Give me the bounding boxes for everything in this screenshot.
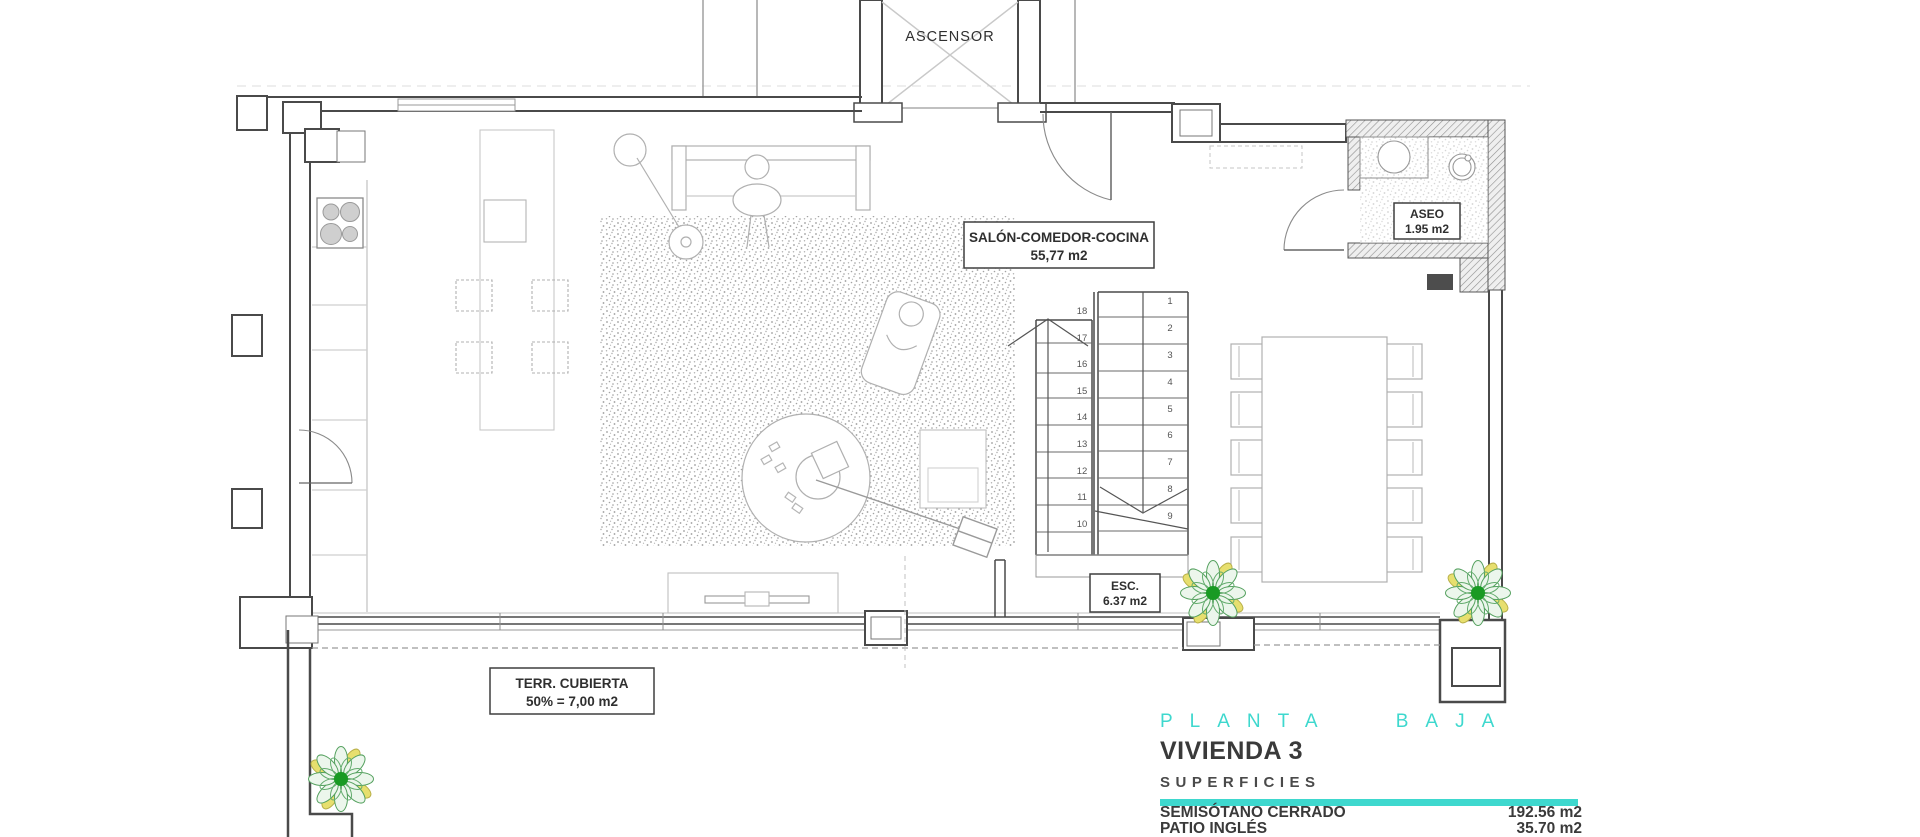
- terrace-door-arc: [299, 430, 352, 483]
- aseo-door-arc: [1284, 190, 1344, 250]
- surface-label: PATIO INGLÉS: [1160, 821, 1267, 836]
- surface-value: 192.56 m2: [1508, 805, 1582, 820]
- esc-label-box: ESC. 6.37 m2: [1090, 574, 1160, 612]
- stove-icon: [317, 198, 363, 248]
- left-wall-pilasters: [232, 96, 365, 528]
- aseo-area: 1.95 m2: [1405, 222, 1449, 236]
- stairs-numbers: 1 2 3 4 5 6 7 8 9 10 11 12 13 14 15 16 1…: [1077, 296, 1173, 530]
- left-wall: [290, 112, 310, 630]
- surface-row: SEMISÓTANO CERRADO 192.56 m2: [1160, 804, 1582, 820]
- stairs: 1 2 3 4 5 6 7 8 9 10 11 12 13 14 15 16 1…: [1008, 292, 1188, 577]
- tv-cabinet: [668, 573, 838, 613]
- stair-number: 10: [1077, 519, 1088, 530]
- plant-icon: [308, 746, 373, 811]
- entry-door-jamb: [1172, 104, 1220, 142]
- elevator-cross: [882, 2, 1018, 108]
- stair-number: 5: [1167, 404, 1172, 415]
- side-lounge: [920, 430, 986, 508]
- ascensor-label: ASCENSOR: [905, 29, 994, 45]
- stair-number: 17: [1077, 333, 1088, 344]
- terr-area: 50% = 7,00 m2: [526, 694, 618, 709]
- entry-door-arc: [1043, 112, 1111, 200]
- stairs-boundary: [1036, 292, 1188, 555]
- stair-number: 4: [1167, 377, 1172, 388]
- salon-label: SALÓN-COMEDOR-COCINA: [969, 230, 1149, 245]
- surface-value: 35.70 m2: [1517, 821, 1583, 836]
- plant-icon: [1445, 560, 1510, 625]
- stair-number: 3: [1167, 350, 1172, 361]
- stair-number: 6: [1167, 430, 1172, 441]
- stair-number: 16: [1077, 359, 1088, 370]
- stair-number: 8: [1167, 484, 1172, 495]
- stair-number: 7: [1167, 457, 1172, 468]
- stair-number: 13: [1077, 439, 1088, 450]
- round-rug: [742, 414, 870, 542]
- stair-number: 11: [1077, 492, 1087, 503]
- aseo-label: ASEO: [1410, 207, 1444, 221]
- salon-label-box: SALÓN-COMEDOR-COCINA 55,77 m2: [964, 222, 1154, 268]
- surface-label: SEMISÓTANO CERRADO: [1160, 805, 1346, 820]
- floor-plan-drawing: ASCENSOR: [0, 0, 1920, 837]
- stair-number: 9: [1167, 511, 1172, 522]
- duct-shaft: [1427, 274, 1453, 290]
- wall-stub: [995, 560, 1005, 617]
- floor-title: PLANTA BAJA: [1160, 711, 1511, 733]
- entry-closet: [1210, 146, 1302, 168]
- stair-number: 15: [1077, 386, 1088, 397]
- floor-plan-page: ASCENSOR: [0, 0, 1920, 837]
- esc-area: 6.37 m2: [1103, 594, 1147, 608]
- plant-icon: [1180, 560, 1245, 625]
- aseo-label-box: ASEO 1.95 m2: [1394, 203, 1460, 239]
- sink-icon: [1378, 141, 1410, 173]
- stair-number: 2: [1167, 323, 1172, 334]
- basin-icon: [1449, 154, 1475, 180]
- terr-label: TERR. CUBIERTA: [516, 676, 629, 691]
- stairs-step-lines: [1036, 317, 1188, 532]
- salon-area: 55,77 m2: [1030, 248, 1087, 263]
- dining-table: [1231, 337, 1422, 582]
- kitchen-chairs: [456, 280, 568, 373]
- stair-number: 12: [1077, 466, 1088, 477]
- unit-title: VIVIENDA 3: [1160, 737, 1303, 766]
- elevator-shaft: ASCENSOR: [854, 0, 1046, 122]
- stair-number: 18: [1077, 306, 1088, 317]
- esc-label: ESC.: [1111, 579, 1139, 593]
- surface-row: PATIO INGLÉS 35.70 m2: [1160, 820, 1582, 836]
- section-title: SUPERFICIES: [1160, 774, 1321, 791]
- surfaces-table: SEMISÓTANO CERRADO 192.56 m2 PATIO INGLÉ…: [1160, 804, 1582, 837]
- stair-number: 1: [1167, 296, 1172, 307]
- stair-number: 14: [1077, 412, 1088, 423]
- terr-label-box: TERR. CUBIERTA 50% = 7,00 m2: [490, 668, 654, 714]
- hall-wall: [1220, 124, 1346, 142]
